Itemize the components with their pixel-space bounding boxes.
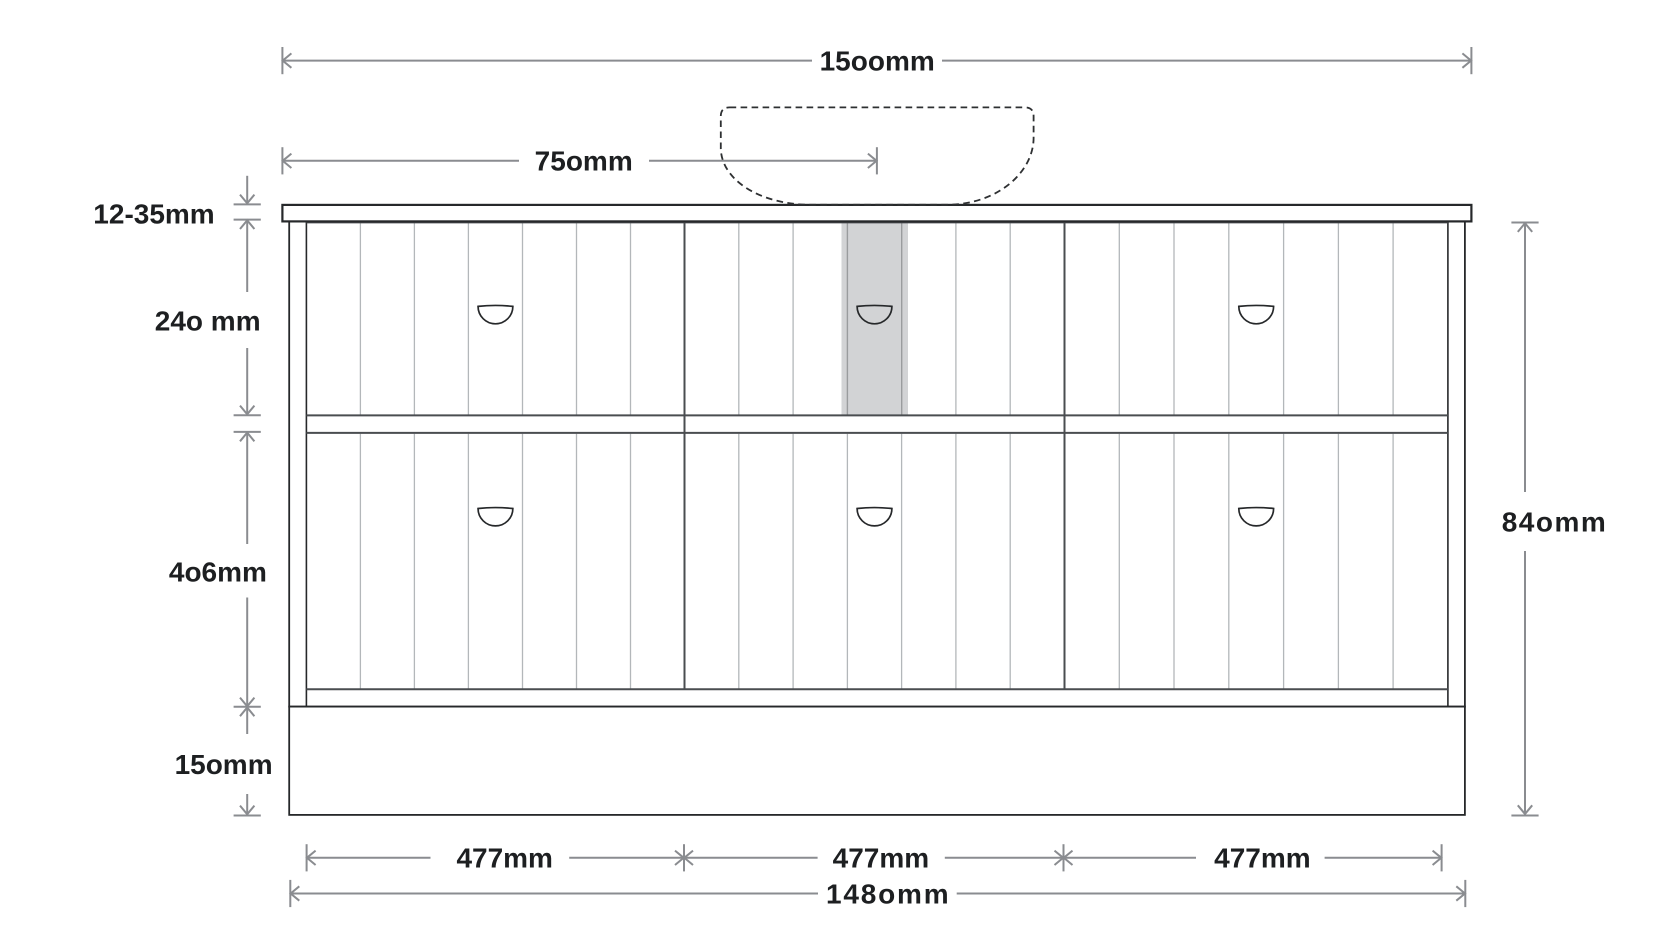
svg-text:477mm: 477mm bbox=[1214, 843, 1311, 874]
svg-text:15oomm: 15oomm bbox=[820, 45, 935, 76]
svg-text:12-35mm: 12-35mm bbox=[93, 199, 214, 230]
svg-text:148omm: 148omm bbox=[826, 878, 950, 909]
svg-text:477mm: 477mm bbox=[833, 843, 930, 874]
svg-text:15omm: 15omm bbox=[175, 749, 273, 780]
svg-text:24o mm: 24o mm bbox=[155, 306, 261, 337]
svg-text:84omm: 84omm bbox=[1502, 507, 1608, 538]
svg-text:477mm: 477mm bbox=[456, 843, 553, 874]
svg-text:75omm: 75omm bbox=[535, 146, 633, 177]
svg-text:4o6mm: 4o6mm bbox=[169, 557, 267, 588]
